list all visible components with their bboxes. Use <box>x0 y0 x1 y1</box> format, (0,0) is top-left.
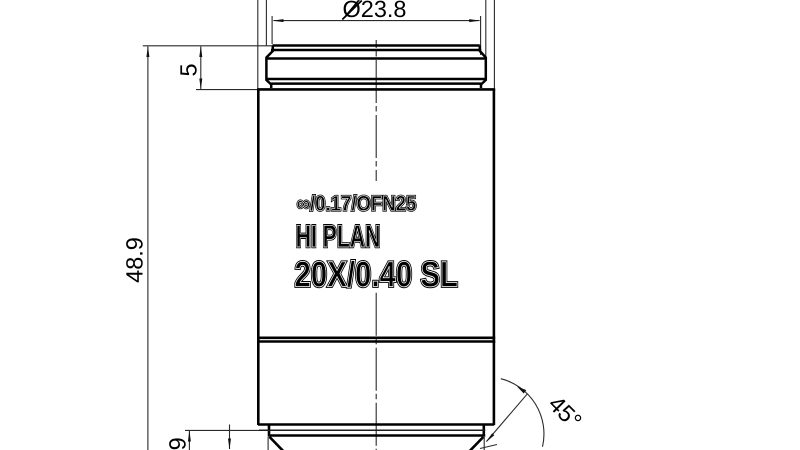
svg-text:HI PLAN: HI PLAN <box>296 218 381 254</box>
svg-text:∞/0.17/OFN25: ∞/0.17/OFN25 <box>297 192 417 215</box>
svg-text:5: 5 <box>176 63 202 76</box>
svg-text:20X/0.40 SL: 20X/0.40 SL <box>295 254 459 295</box>
svg-text:48.9: 48.9 <box>122 237 148 283</box>
svg-text:9: 9 <box>165 437 191 450</box>
